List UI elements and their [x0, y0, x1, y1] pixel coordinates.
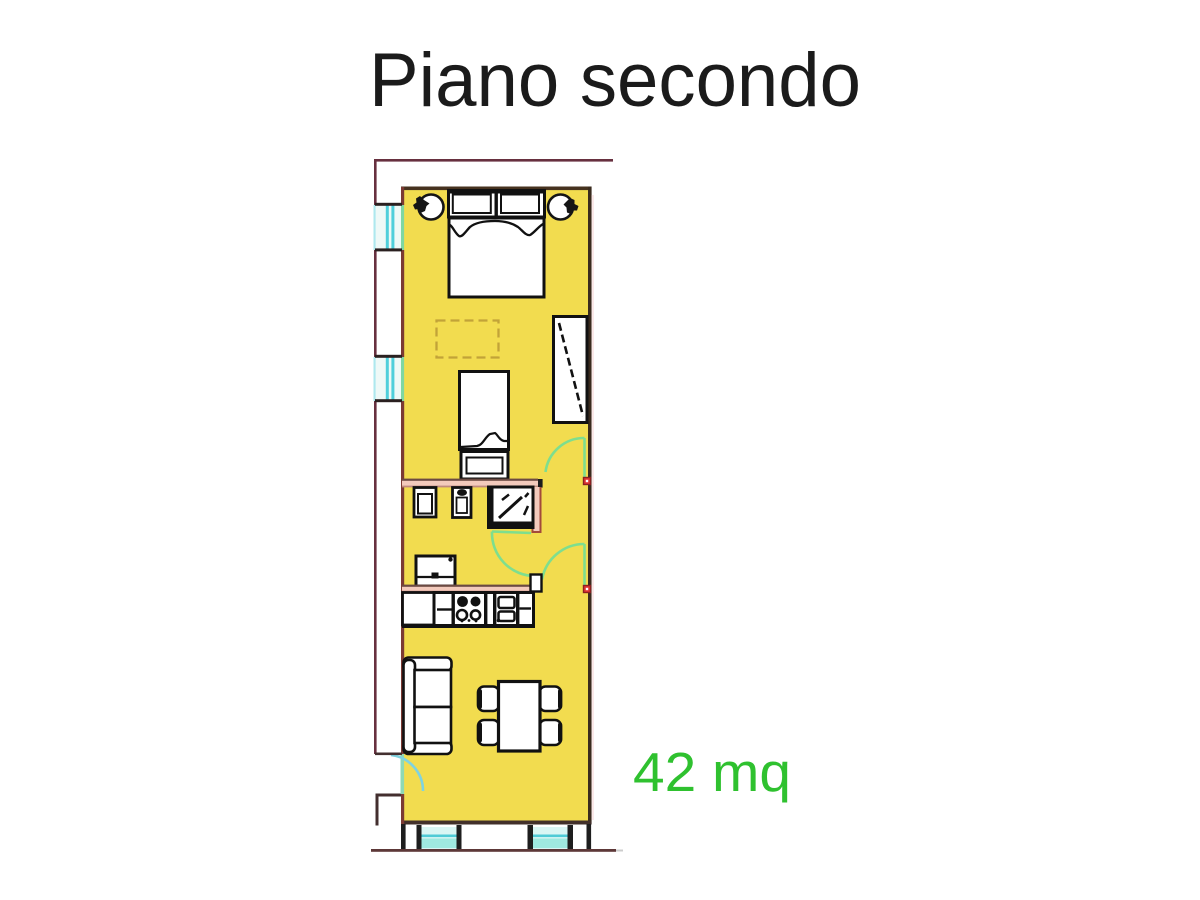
svg-text:42 mq: 42 mq [633, 741, 791, 803]
svg-text:Piano secondo: Piano secondo [369, 38, 861, 123]
